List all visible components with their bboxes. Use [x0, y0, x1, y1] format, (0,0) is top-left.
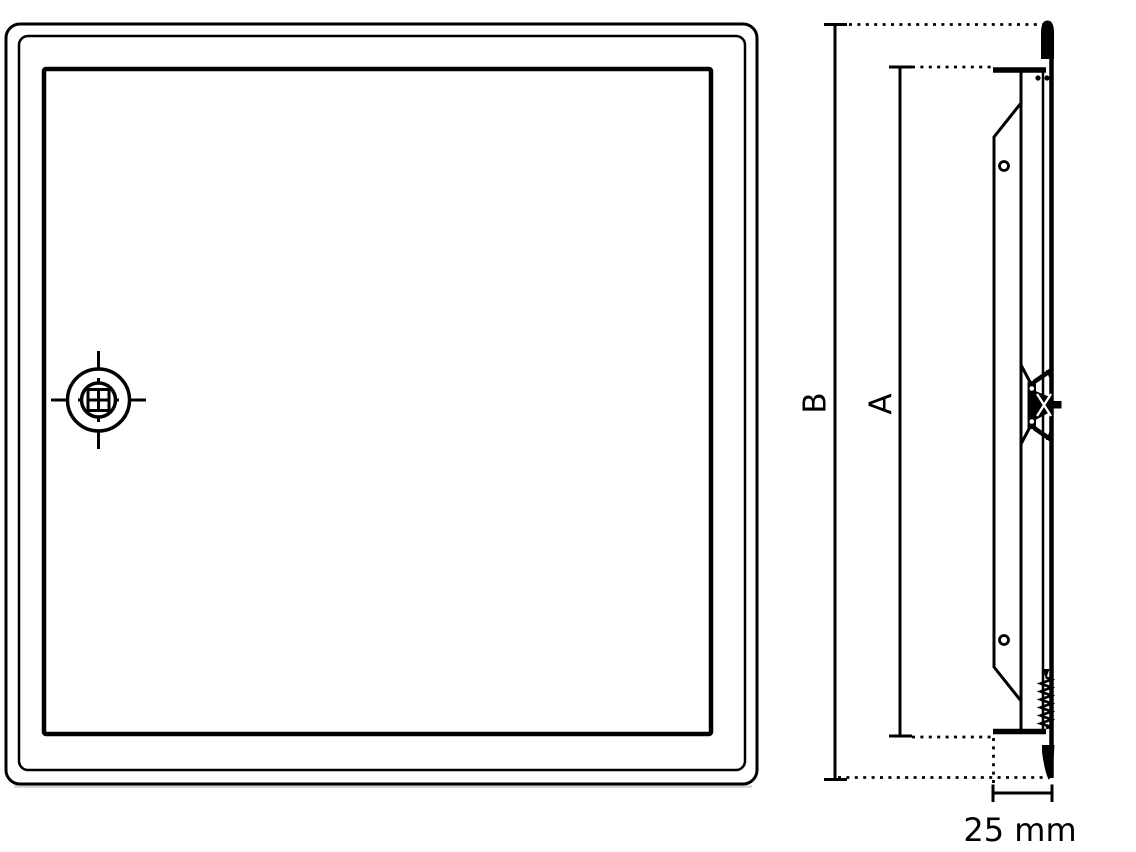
dimension-depth [993, 785, 1052, 803]
latch-stem [1052, 401, 1062, 409]
latch-plate-hole-top [1030, 386, 1035, 391]
latch-assembly [1021, 365, 1062, 444]
latch-plate-hole-bottom [1030, 419, 1035, 424]
side-view: B A 25 mm [798, 21, 1077, 850]
frame-side-wall [994, 103, 1021, 701]
dim-b-label: B [798, 392, 834, 413]
dim-a-label: A [864, 393, 900, 414]
rivet-top-right [1044, 75, 1049, 80]
dim-depth-label: 25 mm [963, 811, 1076, 849]
flange-top-curl [1041, 21, 1054, 60]
rivet-top-left [1035, 75, 1040, 80]
side-profile [993, 21, 1062, 780]
front-view [6, 24, 757, 787]
mounting-hole-bottom [1000, 636, 1009, 645]
technical-drawing: B A 25 mm [0, 0, 1136, 852]
drawing-canvas: B A 25 mm [0, 0, 1136, 852]
mounting-hole-top [1000, 162, 1009, 171]
